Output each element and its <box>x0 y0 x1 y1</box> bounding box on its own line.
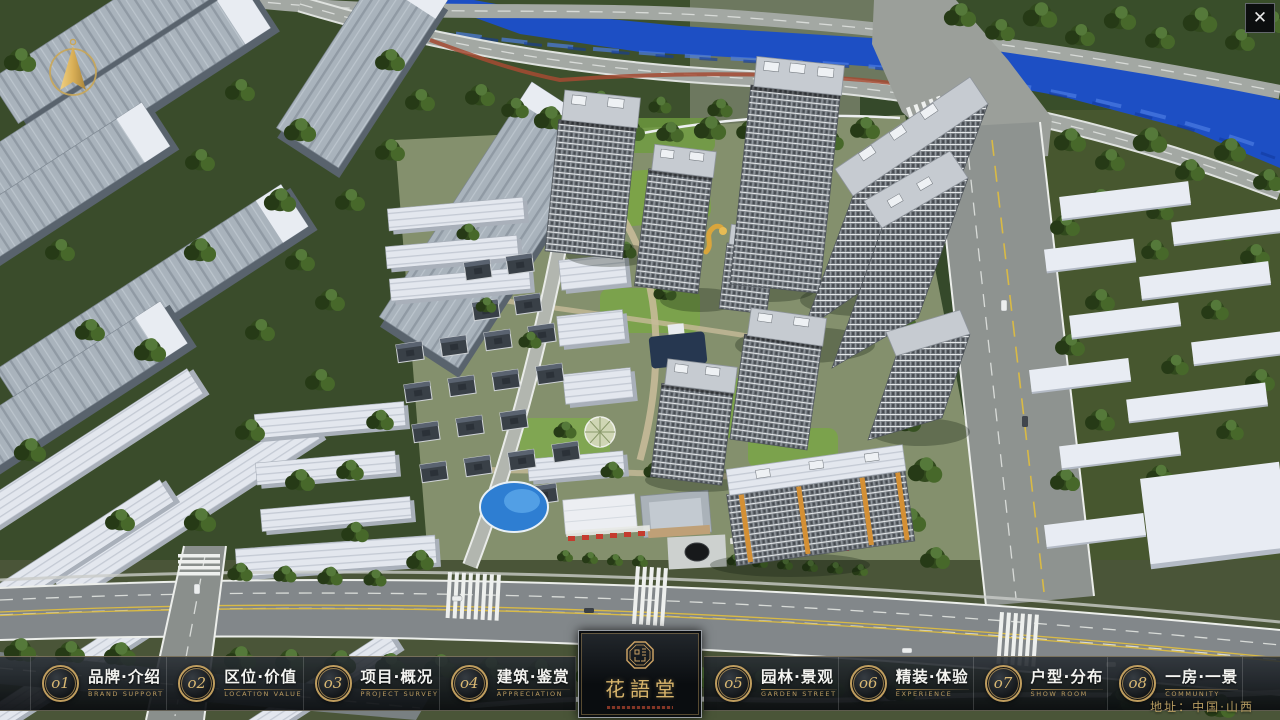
aerial-view-canvas[interactable] <box>0 0 1280 720</box>
close-icon: ✕ <box>1253 10 1267 27</box>
nav-item-garden-landscape[interactable]: o5 园林·景观 GARDEN STREET <box>704 657 838 710</box>
project-logo-plaque: 花語堂 <box>578 630 702 718</box>
project-name: 花語堂 <box>605 673 680 702</box>
nav-label-en: APPRECIATION <box>497 691 570 699</box>
nav-label-zh: 区位·价值 <box>224 669 302 687</box>
nav-item-architecture[interactable]: o4 建筑·鉴赏 APPRECIATION <box>440 657 576 710</box>
nav-label-en: SHOW ROOM <box>1031 691 1104 699</box>
nav-item-brand-intro[interactable]: o1 品牌·介绍 BRAND SUPPORT <box>31 657 167 710</box>
nav-label-zh: 户型·分布 <box>1031 669 1104 687</box>
project-address: 地址：中国·山西 <box>1150 698 1254 715</box>
nav-label-zh: 建筑·鉴赏 <box>497 669 570 687</box>
nav-item-project-survey[interactable]: o3 项目·概况 PROJECT SURVEY <box>304 657 440 710</box>
medallion-o4-icon: o4 <box>451 665 488 702</box>
medallion-o2-icon: o2 <box>178 665 215 702</box>
medallion-o5-icon: o5 <box>715 665 752 702</box>
close-button[interactable]: ✕ <box>1245 3 1275 33</box>
nav-label-zh: 一房·一景 <box>1165 669 1238 687</box>
nav-label-en: PROJECT SURVEY <box>361 691 439 699</box>
nav-label-en: GARDEN STREET <box>761 691 837 699</box>
medallion-o6-icon: o6 <box>850 665 887 702</box>
nav-item-location-value[interactable]: o2 区位·价值 LOCATION VALUE <box>167 657 303 710</box>
nav-label-zh: 品牌·介绍 <box>88 669 164 687</box>
medallion-o3-icon: o3 <box>315 665 352 702</box>
logo-subtext-line <box>607 706 673 709</box>
nav-label-zh: 项目·概况 <box>361 669 439 687</box>
nav-label-en: EXPERIENCE <box>896 691 969 699</box>
nav-item-floorplan-distribution[interactable]: o7 户型·分布 SHOW ROOM <box>973 657 1108 710</box>
nav-item-interior-experience[interactable]: o6 精装·体验 EXPERIENCE <box>838 657 973 710</box>
nav-label-zh: 园林·景观 <box>761 669 837 687</box>
presentation-window: ✕ o1 品牌·介绍 BRAND SUPPORT o2 区位·价值 LOCATI… <box>0 0 1280 720</box>
compass-north-icon <box>44 34 102 100</box>
nav-label-zh: 精装·体验 <box>896 669 969 687</box>
nav-label-en: BRAND SUPPORT <box>88 691 164 699</box>
nav-stub <box>0 657 31 710</box>
bottom-nav-left: o1 品牌·介绍 BRAND SUPPORT o2 区位·价值 LOCATION… <box>0 656 576 711</box>
medallion-o8-icon: o8 <box>1119 665 1156 702</box>
medallion-o1-icon: o1 <box>42 665 79 702</box>
nav-label-en: LOCATION VALUE <box>224 691 302 699</box>
octagon-seal-icon <box>625 640 655 670</box>
medallion-o7-icon: o7 <box>985 665 1022 702</box>
